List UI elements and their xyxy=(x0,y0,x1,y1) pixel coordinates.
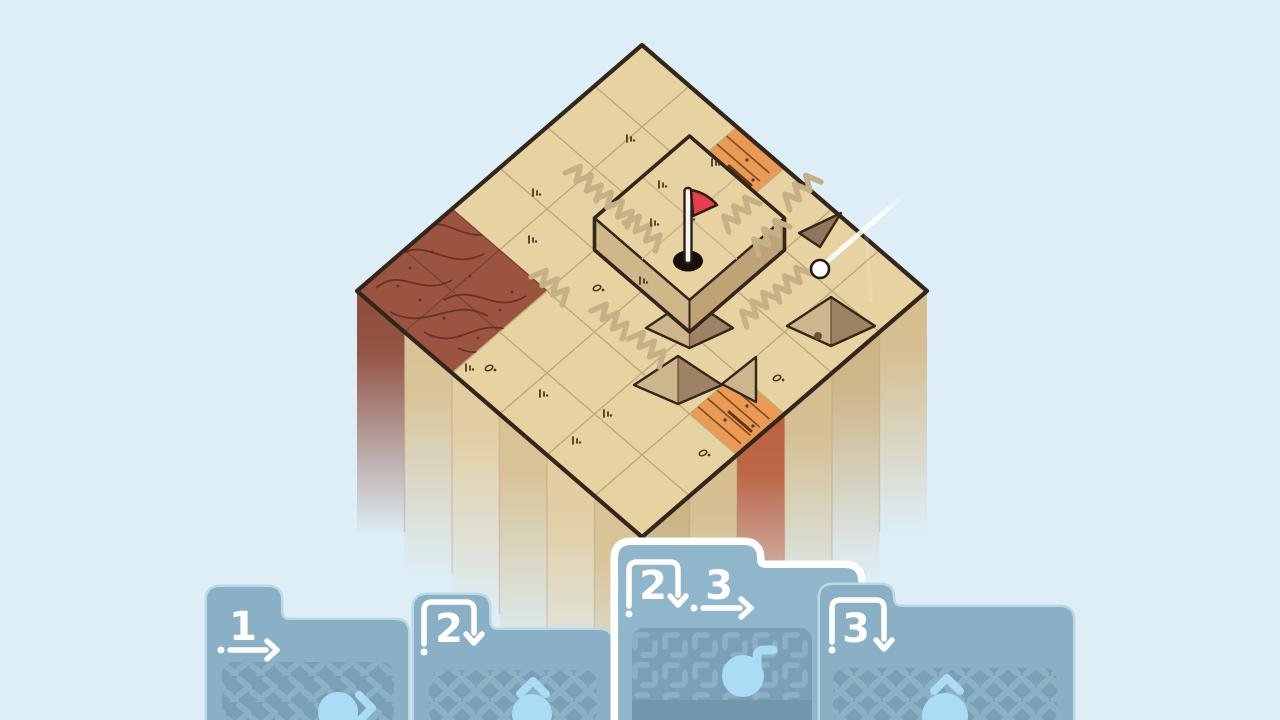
panel-strip xyxy=(632,700,812,720)
terrain-pattern xyxy=(632,628,812,700)
golf-ball xyxy=(811,260,829,278)
move-count: 3 xyxy=(842,606,870,652)
move-count: 3 xyxy=(705,563,733,609)
move-count: 2 xyxy=(435,606,463,652)
pebble xyxy=(814,332,822,340)
move-count: 2 xyxy=(639,563,667,609)
game-board-svg: 12233 xyxy=(0,0,1280,720)
move-card-4[interactable]: 3 xyxy=(820,585,1073,720)
move-count: 1 xyxy=(229,604,257,650)
game-screen: 12233 xyxy=(0,0,1280,720)
